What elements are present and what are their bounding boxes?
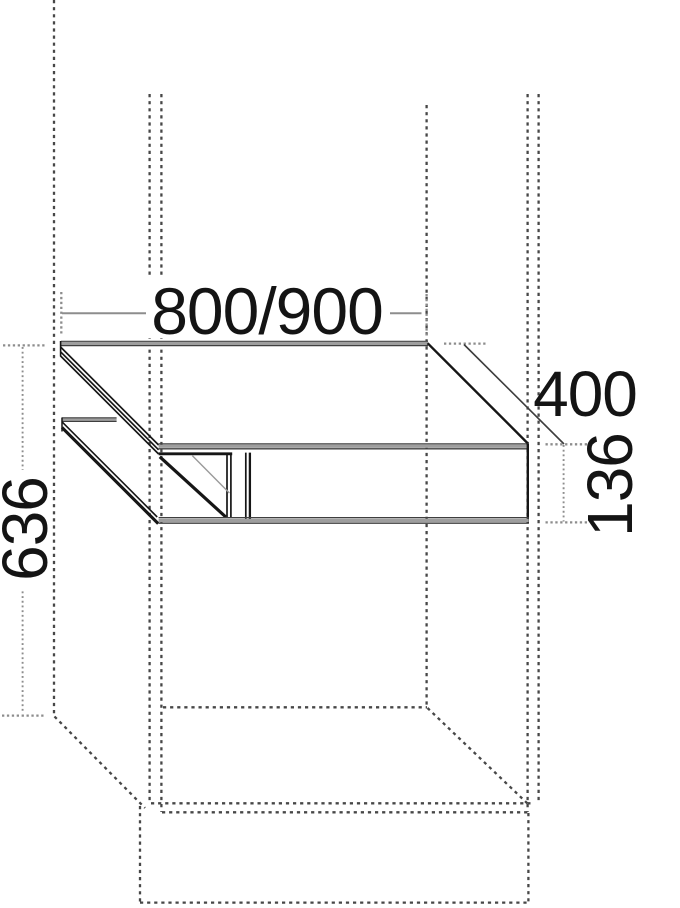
front-height-dimension-label: 136 (574, 433, 646, 537)
technical-drawing-canvas: 800/900 400 136 636 (0, 0, 680, 908)
niche-dashed-outline (54, 0, 539, 903)
plate-left-edge-1 (61, 347, 159, 445)
plinth-right-diagonal (428, 708, 529, 804)
drawer-unit (159, 444, 529, 524)
bracket-diagonal-brace (160, 457, 226, 517)
console-plate (61, 341, 528, 454)
depth-dimension-label: 400 (533, 358, 637, 430)
plinth-left-diagonal (55, 717, 146, 809)
width-dimension-label: 800/900 (151, 274, 383, 348)
lower-panel-left-edge-2 (62, 428, 158, 524)
niche-height-dimension-label: 636 (0, 477, 61, 581)
bracket-diagonal-inner-edge (192, 456, 229, 493)
dimension-labels: 800/900 400 136 636 (0, 274, 646, 590)
technical-drawing: 800/900 400 136 636 (0, 0, 680, 908)
lower-panel-left-edge-1 (62, 422, 157, 517)
lower-panel (62, 418, 158, 524)
